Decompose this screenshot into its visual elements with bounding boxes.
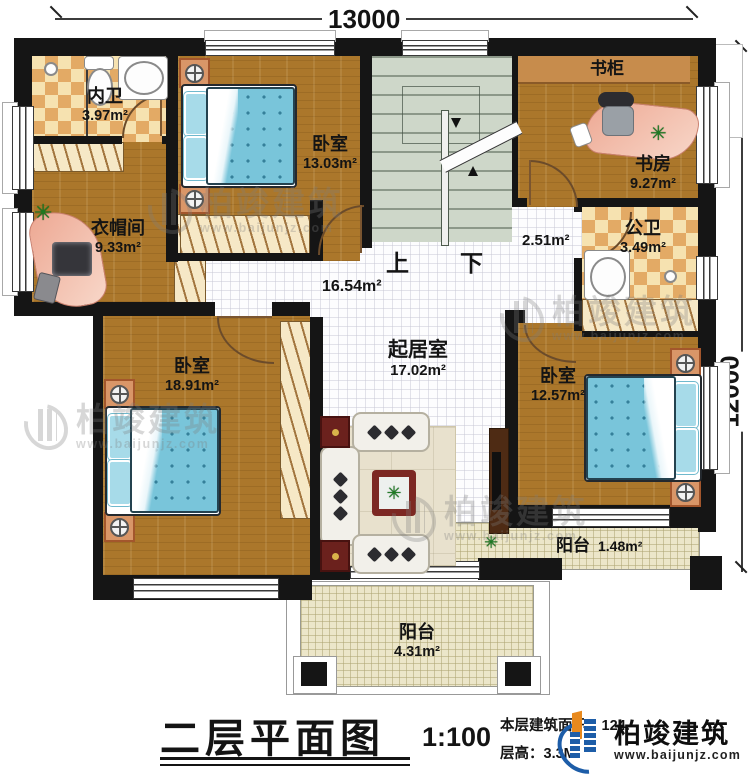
floor-plan-canvas: 13000 12000 — [0, 0, 750, 777]
pillar — [505, 662, 531, 686]
room-name: 书柜 — [590, 59, 624, 78]
chair-icon — [602, 106, 634, 136]
room-label-bedroom-left: 卧室 18.91m² — [147, 356, 237, 395]
dimension-tick — [686, 6, 699, 19]
wall — [574, 207, 582, 212]
room-area: 18.91m² — [147, 378, 237, 395]
pillow — [108, 460, 132, 506]
wall — [582, 331, 698, 337]
room-area: 9.27m² — [610, 176, 696, 193]
room-area: 13.03m² — [285, 156, 375, 173]
pillow — [674, 428, 698, 474]
room-area: 3.49m² — [600, 240, 686, 257]
tv-icon — [492, 452, 501, 510]
window — [205, 40, 335, 56]
room-label-balcony-bottom: 阳台 4.31m² — [377, 622, 457, 661]
sliding-door — [552, 508, 670, 527]
room-label-bedroom-top: 卧室 13.03m² — [285, 134, 375, 173]
room-label-neiwei: 内卫 3.97m² — [60, 86, 150, 125]
hall-area-label: 16.54m² — [322, 278, 382, 296]
coffee-table: ✳ — [372, 470, 416, 516]
stair-rail — [441, 110, 449, 246]
room-label-study: 书房 9.27m² — [610, 154, 696, 193]
mattress — [206, 87, 295, 185]
room-label-gongwei: 公卫 3.49m² — [600, 218, 686, 257]
brand-url: www.baijunjz.com — [614, 748, 741, 762]
stair-direction-arrow — [468, 166, 478, 176]
room-name: 公卫 — [600, 218, 686, 240]
sofa — [320, 446, 360, 546]
wall — [93, 302, 103, 600]
room-name: 卧室 — [285, 134, 375, 156]
nightstand — [179, 184, 210, 214]
room-area: 1.48m² — [598, 538, 642, 554]
logo-bar-blue — [584, 718, 596, 752]
closet — [280, 321, 312, 519]
sink-icon — [590, 257, 626, 297]
wall — [14, 302, 215, 316]
drain-icon — [664, 270, 677, 283]
wall — [178, 253, 314, 261]
wall — [14, 38, 716, 56]
corridor-area-label: 2.51m² — [522, 232, 570, 249]
nightstand — [104, 379, 135, 409]
room-name: 起居室 — [375, 338, 461, 362]
lamp-icon — [110, 385, 129, 404]
stair-direction-arrow — [451, 118, 461, 128]
room-name: 书房 — [610, 154, 696, 176]
room-name: 阳台 — [556, 531, 590, 556]
title-underline — [160, 757, 410, 760]
wall — [577, 198, 698, 207]
room-name: 衣帽间 — [73, 218, 163, 240]
plan-scale: 1:100 — [422, 722, 491, 753]
pillar — [690, 556, 722, 590]
lamp-icon — [676, 483, 695, 502]
door-leaf — [217, 316, 272, 318]
pillow — [184, 92, 208, 136]
door-leaf — [160, 94, 162, 136]
side-cabinet — [320, 540, 350, 572]
plant-icon: ✳ — [650, 124, 667, 144]
door-leaf — [529, 160, 531, 205]
closet — [32, 142, 124, 172]
plan-title: 二层平面图 — [160, 706, 385, 764]
room-area: 12.57m² — [513, 388, 603, 405]
window — [696, 86, 718, 184]
wall — [575, 310, 582, 323]
dimension-tick — [50, 6, 63, 19]
room-name: 卧室 — [513, 366, 603, 388]
room-label-bookcase: 书柜 — [575, 59, 639, 79]
room-area: 17.02m² — [375, 362, 461, 380]
pillar — [301, 662, 327, 686]
room-name: 阳台 — [377, 622, 457, 644]
room-label-cloakroom: 衣帽间 9.33m² — [73, 218, 163, 257]
door-leaf — [360, 205, 362, 253]
plant-icon: ✳ — [386, 484, 401, 502]
plant-icon: ✳ — [484, 534, 498, 551]
sofa — [352, 412, 430, 452]
room-area: 4.31m² — [377, 644, 457, 661]
logo-bar-blue — [570, 732, 580, 758]
pillow — [674, 382, 698, 428]
window — [402, 40, 488, 56]
lamp-icon — [110, 518, 129, 537]
brand-name: 柏竣建筑 — [614, 712, 730, 751]
mattress — [130, 408, 219, 513]
room-area: 9.33m² — [73, 240, 163, 257]
room-area: 3.97m² — [60, 108, 150, 125]
sofa — [352, 534, 430, 574]
room-label-bedroom-right: 卧室 12.57m² — [513, 366, 603, 405]
lamp-icon — [185, 64, 204, 83]
shower-icon — [44, 62, 58, 76]
room-name: 卧室 — [147, 356, 237, 378]
room-name: 内卫 — [60, 86, 150, 108]
room-label-balcony-right: 阳台 1.48m² — [556, 531, 642, 556]
stair-down-label: 下 — [460, 244, 483, 278]
plant-icon: ✳ — [34, 202, 52, 224]
closet — [582, 299, 700, 333]
pillow — [108, 414, 132, 460]
lamp-icon — [676, 354, 695, 373]
window — [133, 578, 279, 599]
window — [12, 106, 34, 190]
stair-up-label: 上 — [386, 244, 409, 278]
side-cabinet — [320, 416, 350, 448]
window — [696, 256, 718, 300]
wall — [272, 302, 310, 316]
closet — [180, 215, 310, 255]
room-label-living: 起居室 17.02m² — [375, 338, 461, 380]
title-underline — [160, 764, 410, 766]
nightstand — [104, 512, 135, 542]
wall — [518, 198, 527, 207]
lamp-icon — [185, 190, 204, 209]
pillow — [184, 136, 208, 180]
exterior-area — [14, 316, 93, 600]
wall — [32, 136, 122, 144]
wall — [478, 558, 562, 580]
brand-logo-icon — [556, 708, 608, 768]
